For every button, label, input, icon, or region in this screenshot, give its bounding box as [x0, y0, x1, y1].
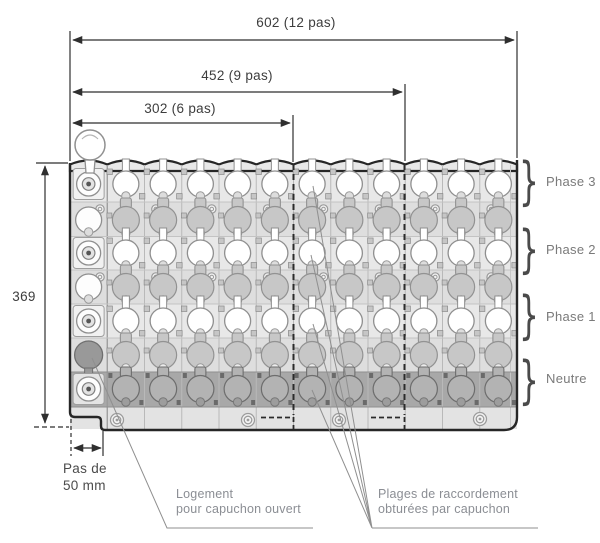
brace-icon: }: [519, 229, 535, 271]
row-label-phase2: Phase 2: [546, 242, 596, 257]
dimension-pitch: Pas de50 mm: [63, 460, 107, 494]
technical-diagram: 602 (12 pas) 452 (9 pas) 302 (6 pas) 369…: [0, 0, 600, 543]
brace-icon: }: [519, 360, 535, 402]
mounting-hole: [242, 414, 255, 427]
callout-open-cap-housing: Logementpour capuchon ouvert: [176, 487, 301, 516]
dimension-total-width: 602 (12 pas): [181, 15, 411, 30]
brace-icon: }: [519, 161, 535, 203]
mounting-hole: [474, 413, 487, 426]
dimension-9pas-width: 452 (9 pas): [122, 68, 352, 83]
callout-capped-pads: Plages de raccordementobturées par capuc…: [378, 487, 518, 516]
dimension-6pas-width: 302 (6 pas): [65, 101, 295, 116]
row-label-phase1: Phase 1: [546, 309, 596, 324]
row-label-neutral: Neutre: [546, 371, 587, 386]
row-label-phase3: Phase 3: [546, 174, 596, 189]
dimension-height: 369: [2, 289, 46, 304]
brace-icon: }: [519, 295, 535, 337]
